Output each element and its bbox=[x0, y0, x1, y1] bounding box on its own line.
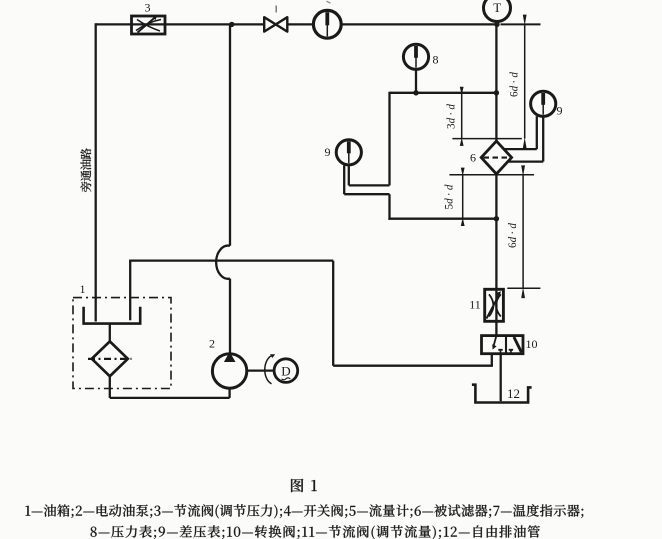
svg-text:3d · d: 3d · d bbox=[446, 104, 458, 129]
svg-text:5d · d: 5d · d bbox=[444, 184, 456, 209]
svg-text:9: 9 bbox=[325, 145, 331, 159]
svg-text:6: 6 bbox=[470, 151, 476, 165]
svg-text:6d · d: 6d · d bbox=[507, 223, 519, 248]
svg-text:10: 10 bbox=[526, 337, 538, 351]
svg-text:T: T bbox=[493, 0, 501, 15]
svg-text:1: 1 bbox=[80, 282, 86, 296]
svg-text:8: 8 bbox=[433, 53, 439, 67]
svg-text:12: 12 bbox=[507, 386, 520, 401]
svg-text:9: 9 bbox=[557, 104, 563, 118]
svg-text:3: 3 bbox=[145, 1, 151, 15]
svg-text:2: 2 bbox=[209, 337, 215, 351]
svg-text:11: 11 bbox=[469, 298, 481, 312]
svg-text:D: D bbox=[281, 364, 290, 379]
svg-text:6d · d: 6d · d bbox=[509, 72, 521, 97]
